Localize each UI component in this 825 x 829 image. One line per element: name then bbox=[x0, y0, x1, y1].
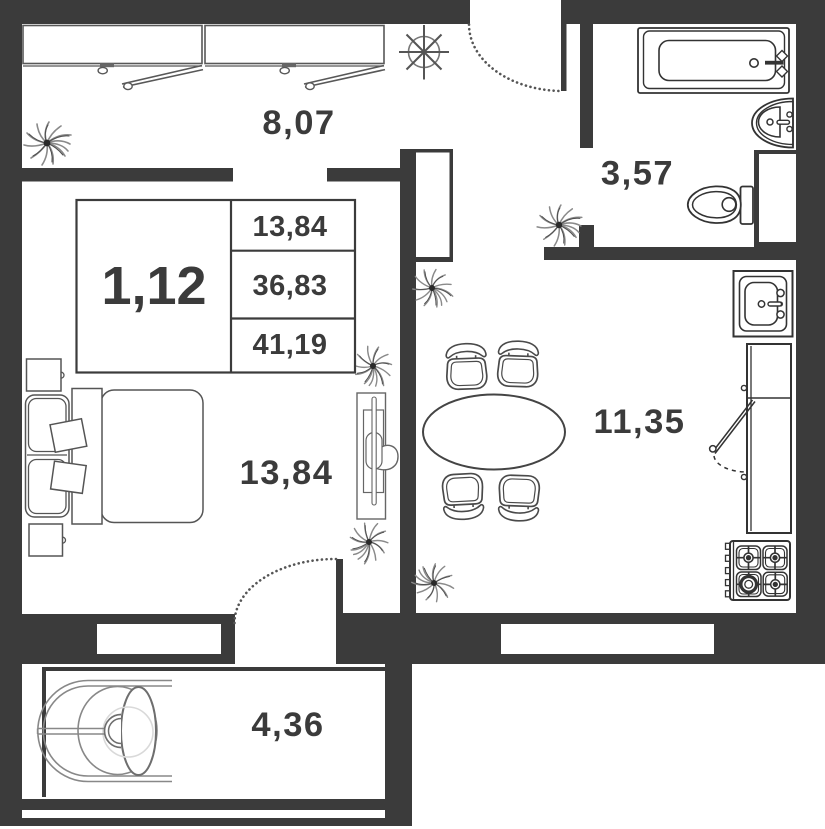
svg-text:8,07: 8,07 bbox=[262, 104, 335, 142]
svg-text:4,36: 4,36 bbox=[251, 706, 324, 744]
svg-text:41,19: 41,19 bbox=[252, 329, 327, 361]
svg-text:1,12: 1,12 bbox=[101, 256, 206, 316]
svg-text:3,57: 3,57 bbox=[601, 155, 674, 193]
svg-text:13,84: 13,84 bbox=[252, 211, 327, 243]
svg-text:36,83: 36,83 bbox=[252, 270, 327, 302]
svg-text:13,84: 13,84 bbox=[240, 454, 334, 492]
svg-text:11,35: 11,35 bbox=[594, 403, 686, 441]
